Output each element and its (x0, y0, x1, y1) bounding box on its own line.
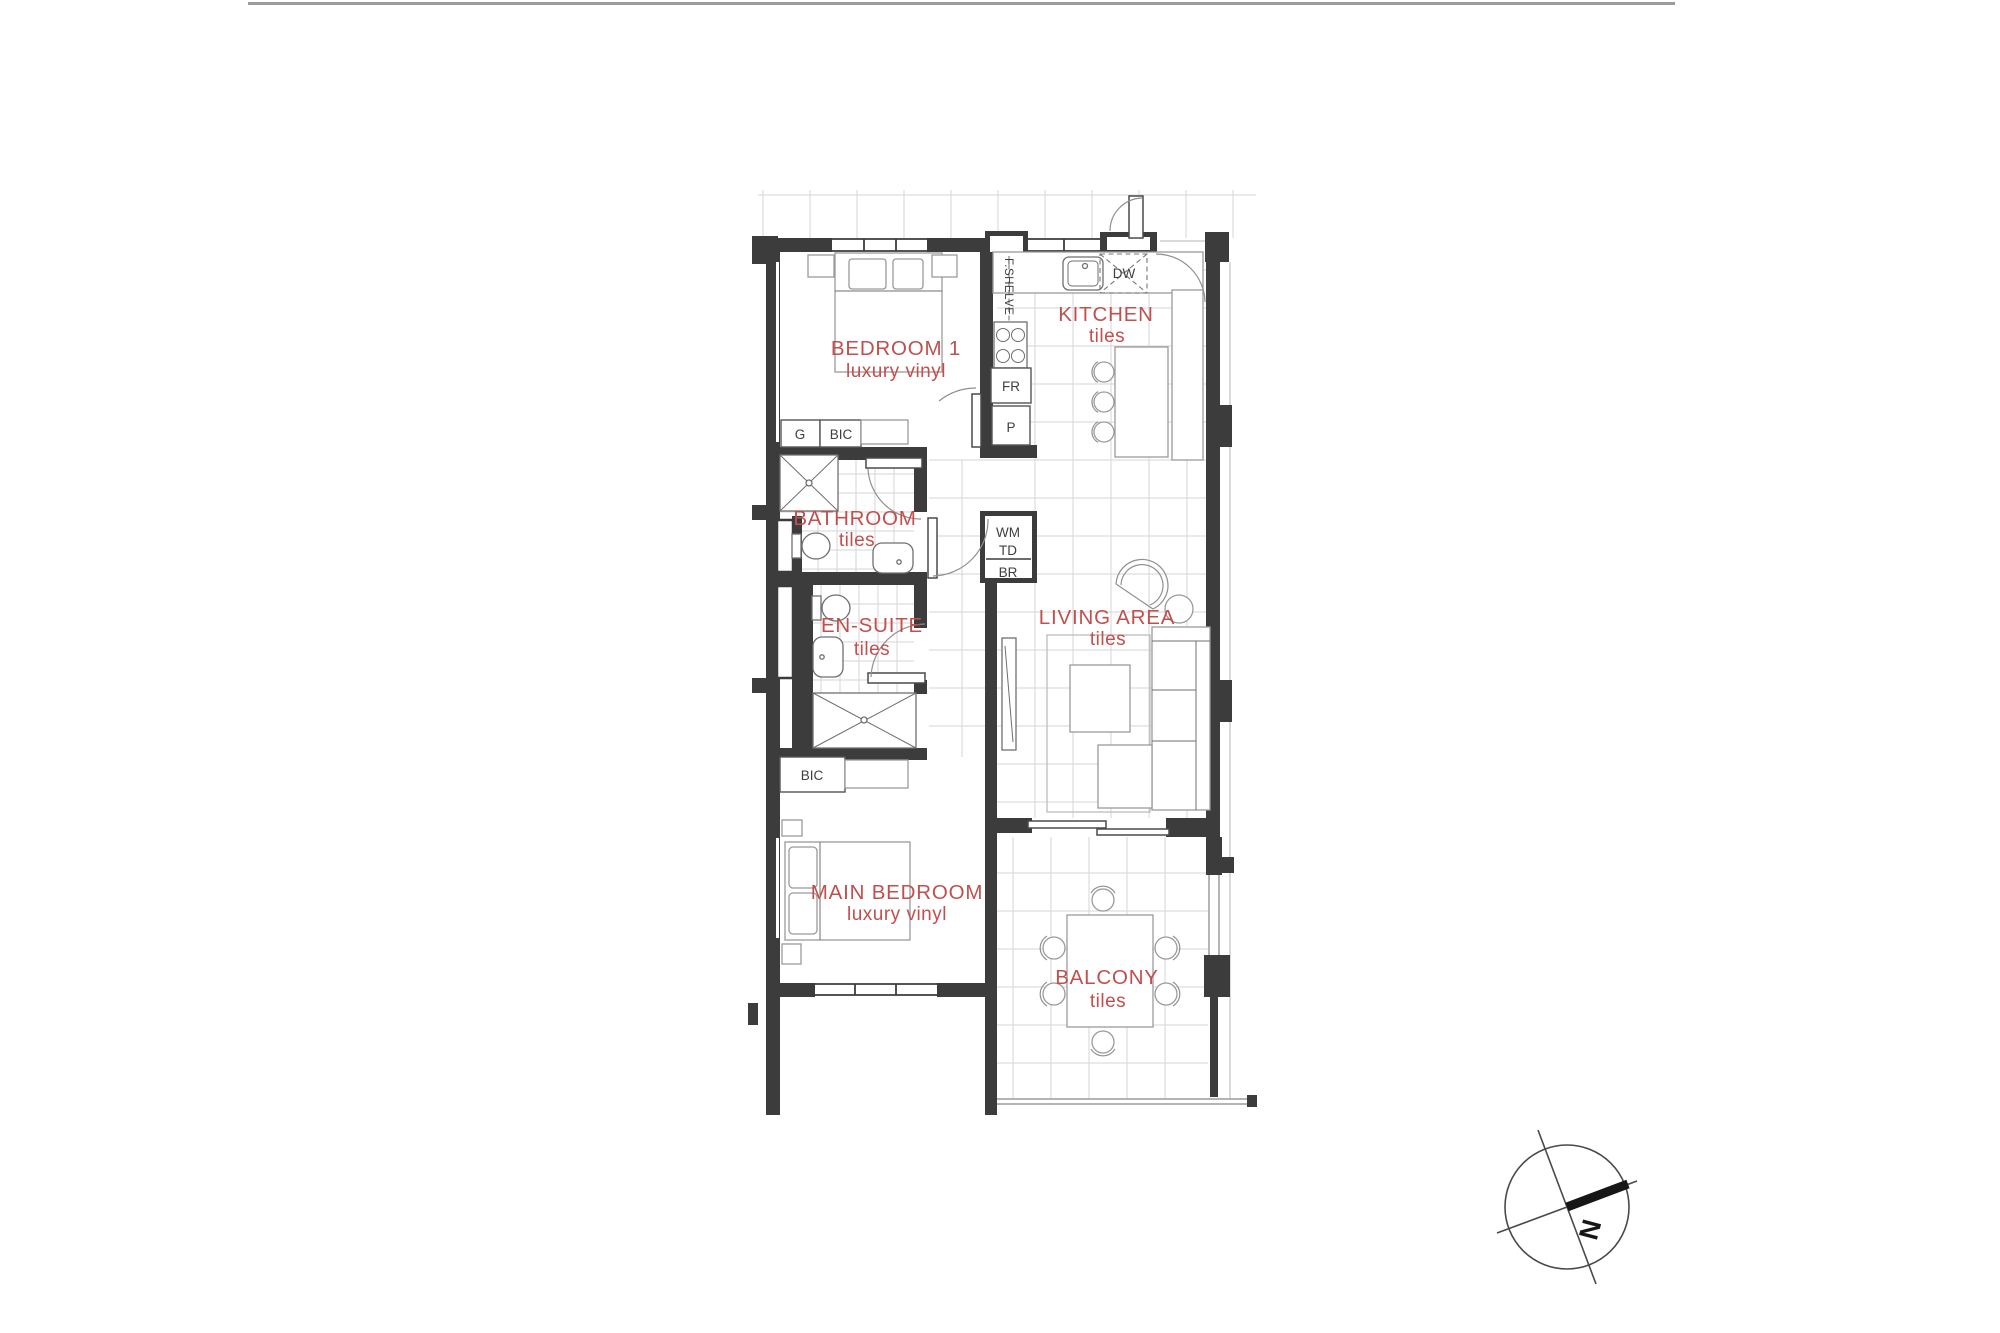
wall-corridor-living (985, 580, 997, 818)
balcony-chair (1091, 886, 1115, 911)
label-f-shelve: F.SHELVE (1002, 258, 1014, 315)
room-label-bedroom1: BEDROOM 1 (831, 337, 961, 360)
label-td: TD (999, 543, 1017, 558)
balcony-chair (1091, 1031, 1115, 1056)
island-table (1115, 347, 1168, 457)
room-label-kitchen: KITCHEN (1058, 303, 1154, 326)
shower-icon (780, 455, 838, 511)
sliding-door (1028, 821, 1169, 835)
closet-shelf (845, 760, 908, 788)
shower-icon (813, 693, 916, 748)
room-finish-living: tiles (1090, 629, 1126, 650)
wall-bedroom1-kitchen (980, 252, 993, 447)
label-bic-main: BIC (801, 768, 824, 783)
wall-balcony-left (985, 833, 997, 1115)
nightstand-icon (782, 820, 802, 836)
label-g: G (795, 427, 806, 442)
living-furniture (1002, 559, 1210, 812)
coffee-table (1070, 665, 1130, 732)
room-finish-balcony: tiles (1090, 991, 1126, 1012)
room-label-ensuite: EN-SUITE (821, 614, 923, 637)
armchair-icon (1116, 559, 1168, 609)
north-compass: N (1497, 1130, 1637, 1284)
basin-icon (813, 637, 843, 677)
dresser-icon (861, 420, 908, 444)
window-bedroom1 (832, 239, 927, 251)
floor-plan-drawing: BEDROOM 1 luxury vinyl KITCHEN tiles BAT… (0, 0, 2000, 1333)
label-fr: FR (1002, 379, 1020, 394)
main-bedroom-furniture (780, 757, 910, 964)
duct-shaft (777, 586, 793, 678)
sink-icon (1063, 257, 1103, 290)
toilet-icon (792, 533, 830, 559)
balcony-chair (1155, 936, 1180, 960)
bar-stool (1092, 392, 1114, 413)
label-dw: DW (1113, 266, 1136, 281)
kitchen-furniture (991, 252, 1203, 460)
room-finish-bathroom: tiles (839, 530, 875, 551)
label-p: P (1006, 420, 1015, 435)
room-label-living: LIVING AREA (1039, 606, 1175, 629)
bar-stool (1092, 362, 1114, 383)
label-bic-bedroom1: BIC (830, 427, 853, 442)
structural-grid (758, 190, 1256, 238)
label-br: BR (999, 565, 1018, 580)
stove-icon (994, 322, 1027, 368)
bar-stool (1092, 422, 1114, 443)
room-finish-main-bedroom: luxury vinyl (847, 904, 947, 925)
wall-bathroom-ensuite (766, 572, 927, 585)
label-wm: WM (996, 525, 1020, 540)
nightstand-icon (782, 944, 801, 964)
nightstand-icon (808, 255, 834, 277)
pillow-icon (893, 259, 923, 289)
room-label-main-bedroom: MAIN BEDROOM (811, 881, 983, 904)
north-arrow (1567, 1184, 1628, 1207)
room-label-balcony: BALCONY (1055, 966, 1159, 989)
room-label-bathroom: BATHROOM (793, 507, 916, 530)
nightstand-icon (932, 255, 957, 277)
room-finish-bedroom1: luxury vinyl (846, 361, 946, 382)
pillow-icon (849, 259, 886, 289)
room-finish-kitchen: tiles (1089, 326, 1125, 347)
tv-icon (1002, 638, 1016, 750)
bedroom1-door (939, 388, 981, 447)
top-rule (248, 2, 1675, 5)
corridor-door (928, 518, 988, 578)
room-finish-ensuite: tiles (854, 639, 890, 660)
window-kitchen (1028, 239, 1100, 251)
basin-icon (873, 543, 913, 573)
window-main-bedroom (815, 984, 937, 995)
floor-plan-page: BEDROOM 1 luxury vinyl KITCHEN tiles BAT… (0, 0, 2000, 1333)
duct-shaft (777, 520, 793, 572)
kitchen-counter (1172, 290, 1203, 460)
balcony-chair (1040, 936, 1065, 960)
